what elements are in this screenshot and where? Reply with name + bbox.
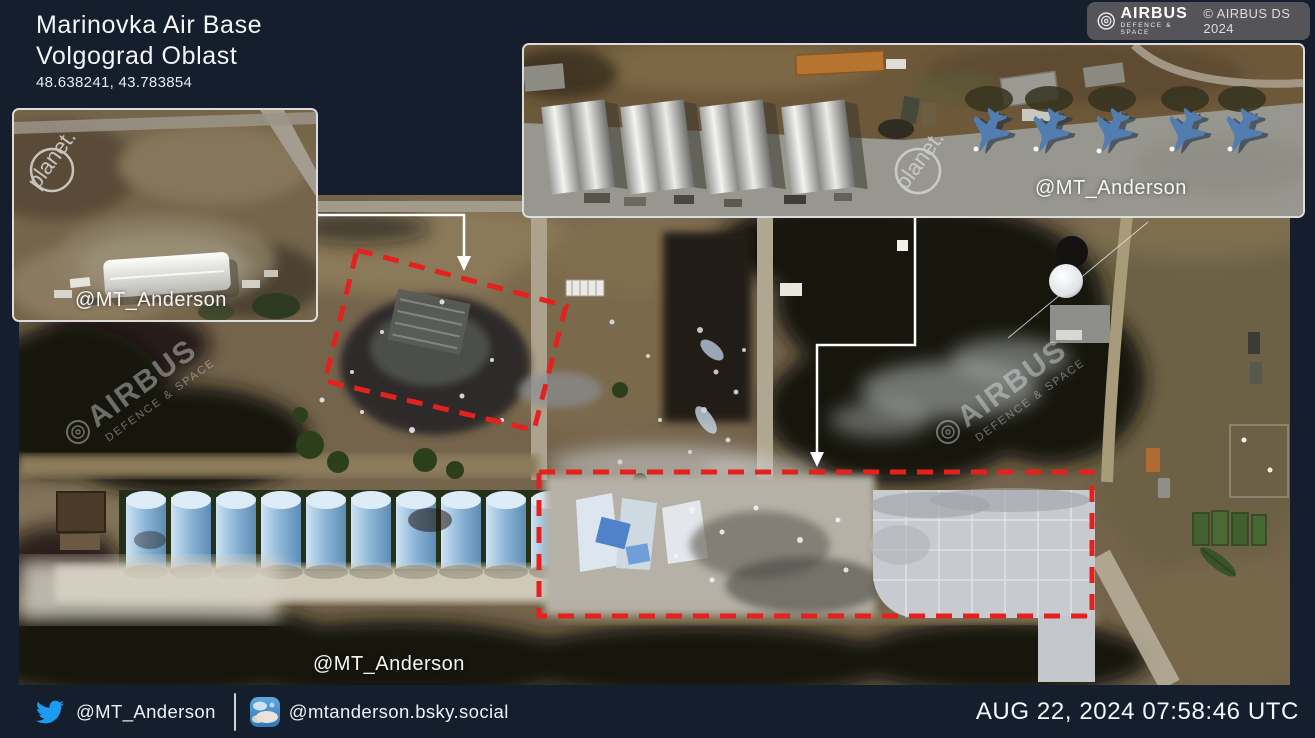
bluesky-handle: @mtanderson.bsky.social: [289, 701, 509, 723]
bluesky-icon: [250, 697, 280, 727]
inset-jets-closeup: planet.: [522, 43, 1305, 218]
airbus-division-text: DEFENCE & SPACE: [1120, 23, 1191, 36]
inset1-attribution-label: @MT_Anderson: [75, 289, 227, 312]
footer-divider: [234, 693, 236, 731]
capture-timestamp: AUG 22, 2024 07:58:46 UTC: [976, 698, 1299, 726]
inset2-attribution-label: @MT_Anderson: [1035, 177, 1187, 200]
page-title-line1: Marinovka Air Base: [36, 10, 262, 41]
coordinates: 48.638241, 43.783854: [36, 74, 262, 91]
title-block: Marinovka Air Base Volgograd Oblast 48.6…: [36, 10, 262, 91]
airbus-brand-text: AIRBUS: [1120, 6, 1191, 22]
footer-bar: @MT_Anderson @mtanderson.bsky.social AUG…: [0, 685, 1315, 738]
page-title-line2: Volgograd Oblast: [36, 41, 262, 72]
twitter-handle: @MT_Anderson: [76, 701, 216, 723]
twitter-icon: [33, 698, 67, 726]
osint-graphic: AIRBUS DEFENCE & SPACE AIRBUS DEFENCE & …: [0, 0, 1315, 738]
main-attribution-label: @MT_Anderson: [313, 653, 465, 676]
airbus-swirl-icon: [1097, 10, 1115, 32]
airbus-credit-badge: AIRBUS DEFENCE & SPACE © AIRBUS DS 2024: [1087, 2, 1310, 40]
copyright-text: © AIRBUS DS 2024: [1203, 6, 1300, 36]
airbus-logo: AIRBUS DEFENCE & SPACE: [1097, 6, 1191, 36]
